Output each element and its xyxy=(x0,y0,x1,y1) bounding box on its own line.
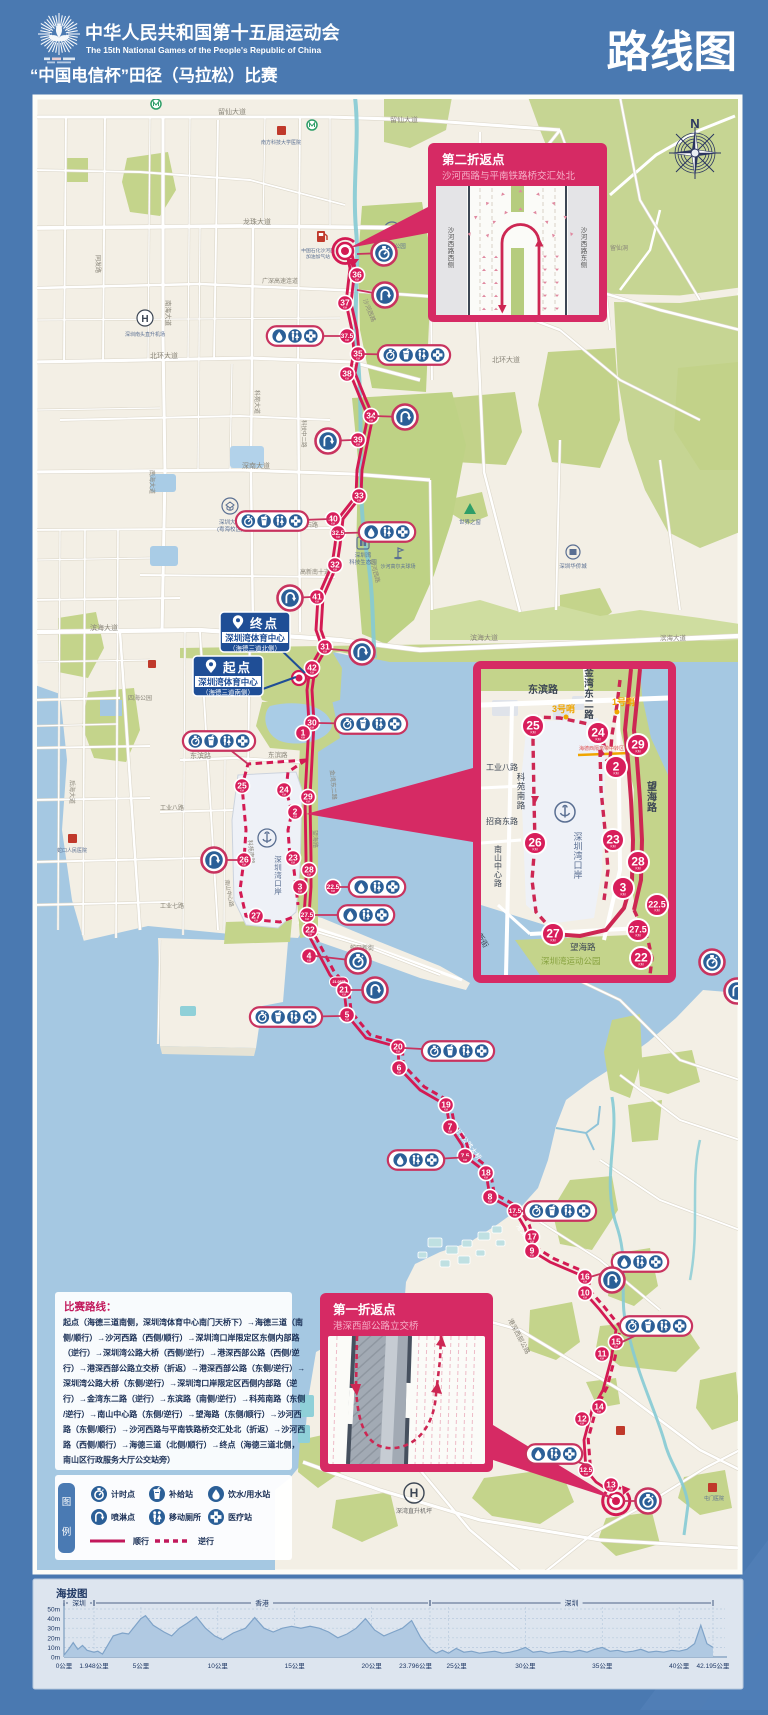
svg-text:路线图: 路线图 xyxy=(607,29,738,77)
svg-text:KM: KM xyxy=(635,750,640,754)
svg-text:留仙大道: 留仙大道 xyxy=(390,115,418,124)
svg-text:KM: KM xyxy=(310,671,314,675)
svg-text:北环大道: 北环大道 xyxy=(150,351,178,360)
svg-text:图: 图 xyxy=(62,1497,72,1508)
svg-text:科苑南路: 科苑南路 xyxy=(517,772,526,811)
svg-text:KM: KM xyxy=(345,1018,349,1022)
svg-text:留仙洞: 留仙洞 xyxy=(610,244,628,252)
svg-text:KM: KM xyxy=(345,338,349,342)
svg-text:KM: KM xyxy=(488,1200,492,1204)
svg-text:KM: KM xyxy=(301,736,305,740)
svg-text:高新南十道: 高新南十道 xyxy=(300,568,330,576)
svg-text:KM: KM xyxy=(530,731,535,735)
svg-text:40公里: 40公里 xyxy=(669,1662,690,1670)
svg-text:30公里: 30公里 xyxy=(515,1662,536,1670)
svg-text:KM: KM xyxy=(345,377,349,381)
svg-text:深湾直升机坪: 深湾直升机坪 xyxy=(396,1507,432,1515)
svg-text:1.948公里: 1.948公里 xyxy=(79,1662,109,1670)
svg-text:沙河高尔夫球场: 沙河高尔夫球场 xyxy=(380,563,415,570)
svg-text:南山区行政服务大厅公交站旁）: 南山区行政服务大厅公交站旁） xyxy=(63,1455,175,1465)
svg-text:42.195公里: 42.195公里 xyxy=(697,1662,730,1670)
svg-text:招商东路: 招商东路 xyxy=(486,816,518,826)
svg-text:The 15th National Games of the: The 15th National Games of the People's … xyxy=(86,45,321,55)
svg-text:路（西侧/顺行）→海德三道（北侧/顺行）→终点（海德三道北侧: 路（西侧/顺行）→海德三道（北侧/顺行）→终点（海德三道北侧， xyxy=(63,1439,299,1449)
svg-text:留仙大道: 留仙大道 xyxy=(218,107,246,116)
svg-text:KM: KM xyxy=(613,772,618,776)
svg-text:比赛路线：: 比赛路线： xyxy=(64,1300,117,1313)
svg-text:侧/顺行）→沙河西路（西侧/顺行）→深圳湾口岸限定区东侧内部: 侧/顺行）→沙河西路（西侧/顺行）→深圳湾口岸限定区东侧内部路 xyxy=(63,1332,300,1342)
svg-text:深圳: 深圳 xyxy=(72,1599,86,1608)
svg-text:工业八路: 工业八路 xyxy=(486,762,518,772)
svg-text:例: 例 xyxy=(62,1526,72,1538)
svg-text:H: H xyxy=(410,1486,419,1500)
svg-text:KM: KM xyxy=(583,1296,587,1300)
svg-text:KM: KM xyxy=(397,1071,401,1075)
svg-text:（海德三道南侧）: （海德三道南侧） xyxy=(202,688,254,697)
svg-text:深圳华侨城: 深圳华侨城 xyxy=(559,562,587,570)
svg-text:计时点: 计时点 xyxy=(111,1489,135,1499)
svg-text:KM: KM xyxy=(305,917,309,921)
svg-text:3号哨: 3号哨 xyxy=(552,703,575,714)
svg-text:KM: KM xyxy=(444,1108,448,1112)
svg-text:逆行: 逆行 xyxy=(198,1536,214,1546)
svg-text:KM: KM xyxy=(550,939,555,943)
svg-text:KM: KM xyxy=(298,890,302,894)
svg-text:补给站: 补给站 xyxy=(168,1489,193,1499)
svg-text:KM: KM xyxy=(532,848,537,852)
svg-text:行）→金湾东二路（逆行）→东滨路（南侧/逆行）→科苑南路（东: 行）→金湾东二路（逆行）→东滨路（南侧/逆行）→科苑南路（东侧 xyxy=(62,1394,305,1404)
svg-text:同发路: 同发路 xyxy=(94,255,102,273)
svg-text:（海德三道北侧）: （海德三道北侧） xyxy=(229,644,281,653)
svg-text:KM: KM xyxy=(609,1488,613,1492)
svg-text:沙河西路西侧: 沙河西路西侧 xyxy=(448,227,455,269)
svg-text:滨海大道: 滨海大道 xyxy=(470,633,498,642)
svg-text:龙珠大道: 龙珠大道 xyxy=(243,217,271,226)
svg-text:望海路: 望海路 xyxy=(647,780,658,814)
svg-text:KM: KM xyxy=(484,1176,488,1180)
svg-text:KM: KM xyxy=(530,1254,534,1258)
svg-text:科苑大道: 科苑大道 xyxy=(253,390,261,414)
svg-text:深圳湾口岸: 深圳湾口岸 xyxy=(573,832,582,880)
svg-text:四海公园: 四海公园 xyxy=(128,694,152,702)
svg-text:KM: KM xyxy=(282,793,286,797)
svg-text:第二折返点: 第二折返点 xyxy=(442,152,505,167)
svg-text:饮水/用水站: 饮水/用水站 xyxy=(227,1489,270,1499)
svg-text:中国石化沙河西: 中国石化沙河西 xyxy=(301,247,335,254)
svg-text:KM: KM xyxy=(323,650,327,654)
svg-text:KM: KM xyxy=(584,1472,588,1476)
svg-text:后海大道: 后海大道 xyxy=(68,780,76,804)
svg-text:KM: KM xyxy=(396,1050,400,1054)
svg-text:路（东侧/顺行）→沙河西路与平南铁路桥交汇处北（折返）→沙河: 路（东侧/顺行）→沙河西路与平南铁路桥交汇处北（折返）→沙河西 xyxy=(63,1424,305,1434)
svg-text:10公里: 10公里 xyxy=(208,1662,229,1670)
svg-text:北环大道: 北环大道 xyxy=(492,355,520,364)
svg-text:中华人民共和国第十五届运动会: 中华人民共和国第十五届运动会 xyxy=(85,22,340,43)
svg-text:23.796公里: 23.796公里 xyxy=(399,1662,432,1670)
svg-text:KM: KM xyxy=(310,726,314,730)
svg-text:/逆行）→南山中心路（东侧/逆行）→望海路（东侧/顺行）→沙: /逆行）→南山中心路（东侧/逆行）→望海路（东侧/顺行）→沙河西 xyxy=(63,1409,302,1419)
svg-text:KM: KM xyxy=(357,499,361,503)
svg-text:（逆行）→深圳湾公路大桥（西侧/逆行）→港深西部公路（西侧/: （逆行）→深圳湾公路大桥（西侧/逆行）→港深西部公路（西侧/逆 xyxy=(63,1348,299,1358)
svg-text:顺行: 顺行 xyxy=(133,1536,149,1546)
svg-text:KM: KM xyxy=(600,1357,604,1361)
svg-text:金湾东二路: 金湾东二路 xyxy=(583,667,594,721)
svg-text:KM: KM xyxy=(291,861,295,865)
svg-text:深圳湾运动公园: 深圳湾运动公园 xyxy=(541,956,601,966)
svg-text:KM: KM xyxy=(610,845,615,849)
svg-text:35公里: 35公里 xyxy=(592,1662,613,1670)
svg-text:沙河西路与平南铁路桥交汇处北: 沙河西路与平南铁路桥交汇处北 xyxy=(442,170,576,182)
svg-text:KM: KM xyxy=(595,738,600,742)
svg-text:东滨路: 东滨路 xyxy=(528,683,559,696)
svg-text:KM: KM xyxy=(315,600,319,604)
svg-text:KM: KM xyxy=(331,522,335,526)
svg-text:沙河西路东侧: 沙河西路东侧 xyxy=(581,227,588,269)
svg-text:南海大道: 南海大道 xyxy=(148,470,156,494)
svg-text:深圳南头直升机场: 深圳南头直升机场 xyxy=(125,331,165,338)
svg-text:世界之窗: 世界之窗 xyxy=(459,518,482,526)
svg-text:KM: KM xyxy=(597,1410,601,1414)
svg-text:15公里: 15公里 xyxy=(285,1662,306,1670)
svg-text:25公里: 25公里 xyxy=(447,1662,468,1670)
svg-text:KM: KM xyxy=(293,815,297,819)
svg-text:10m: 10m xyxy=(47,1645,60,1652)
svg-text:KM: KM xyxy=(463,1158,467,1162)
svg-text:香港: 香港 xyxy=(255,1599,269,1608)
svg-text:KM: KM xyxy=(242,863,246,867)
svg-text:KM: KM xyxy=(336,535,340,539)
svg-text:深圳湾体育中心: 深圳湾体育中心 xyxy=(198,677,258,687)
svg-text:KM: KM xyxy=(308,933,312,937)
svg-text:滨海大道: 滨海大道 xyxy=(660,633,687,642)
svg-text:1号哨: 1号哨 xyxy=(612,696,635,707)
svg-text:深圳湾公路大桥（东侧/逆行）→深圳湾口岸限定区西侧内部路（逆: 深圳湾公路大桥（东侧/逆行）→深圳湾口岸限定区西侧内部路（逆 xyxy=(63,1378,297,1388)
svg-text:东滨路: 东滨路 xyxy=(268,750,288,759)
svg-text:KM: KM xyxy=(333,568,337,572)
svg-text:KM: KM xyxy=(356,443,360,447)
svg-text:0m: 0m xyxy=(51,1655,60,1662)
svg-text:KM: KM xyxy=(635,867,640,871)
svg-text:KM: KM xyxy=(342,993,346,997)
svg-text:南海大道: 南海大道 xyxy=(164,300,173,327)
svg-text:望海路: 望海路 xyxy=(570,942,596,952)
svg-text:KM: KM xyxy=(614,1345,618,1349)
svg-text:工业七路: 工业七路 xyxy=(160,902,184,910)
svg-text:移动厕所: 移动厕所 xyxy=(169,1512,201,1522)
svg-text:KM: KM xyxy=(307,959,311,963)
svg-text:深圳湾: 深圳湾 xyxy=(355,551,372,559)
svg-text:东滨路: 东滨路 xyxy=(190,751,211,760)
svg-text:KM: KM xyxy=(448,1130,452,1134)
svg-text:KM: KM xyxy=(369,419,373,423)
svg-text:50m: 50m xyxy=(47,1607,60,1614)
svg-text:30m: 30m xyxy=(47,1626,60,1633)
svg-text:KM: KM xyxy=(240,789,244,793)
svg-text:屯门医院: 屯门医院 xyxy=(704,1495,724,1502)
svg-text:KM: KM xyxy=(307,873,311,877)
svg-text:行）→港深西部公路立交桥（折返）→港深西部公路（东侧/逆行）: 行）→港深西部公路立交桥（折返）→港深西部公路（东侧/逆行）→ xyxy=(62,1363,305,1373)
svg-text:20m: 20m xyxy=(47,1635,60,1642)
svg-text:KM: KM xyxy=(331,889,335,893)
svg-text:终点: 终点 xyxy=(250,616,279,631)
svg-text:KM: KM xyxy=(356,357,360,361)
svg-text:20公里: 20公里 xyxy=(361,1662,382,1670)
svg-text:N: N xyxy=(690,116,699,131)
svg-text:KM: KM xyxy=(635,934,640,938)
svg-text:起点: 起点 xyxy=(222,660,252,675)
svg-text:深圳湾口岸: 深圳湾口岸 xyxy=(274,855,282,896)
svg-text:深圳: 深圳 xyxy=(565,1599,579,1608)
svg-text:科技中二路: 科技中二路 xyxy=(300,420,308,448)
svg-text:南方科技大学医院: 南方科技大学医院 xyxy=(261,139,301,146)
svg-text:KM: KM xyxy=(654,909,659,913)
svg-text:KM: KM xyxy=(638,963,643,967)
svg-text:第一折返点: 第一折返点 xyxy=(333,1302,396,1317)
svg-text:港深西部公路立交桥: 港深西部公路立交桥 xyxy=(333,1320,419,1332)
svg-text:广深高速连道: 广深高速连道 xyxy=(262,277,298,285)
svg-text:KM: KM xyxy=(580,1422,584,1426)
svg-text:KM: KM xyxy=(620,893,625,897)
svg-text:5公里: 5公里 xyxy=(133,1662,150,1670)
svg-text:喷淋点: 喷淋点 xyxy=(111,1512,135,1522)
svg-text:“中国电信杯”田径（马拉松）比赛: “中国电信杯”田径（马拉松）比赛 xyxy=(30,65,278,85)
svg-text:KM: KM xyxy=(254,919,258,923)
svg-text:深南大道: 深南大道 xyxy=(242,461,270,470)
svg-text:KM: KM xyxy=(306,800,310,804)
svg-text:南山中心路: 南山中心路 xyxy=(494,844,502,888)
svg-text:KM: KM xyxy=(513,1213,517,1217)
svg-text:工业八路: 工业八路 xyxy=(160,804,184,812)
svg-text:加油加气站: 加油加气站 xyxy=(306,253,330,260)
svg-text:起点（海德三道南侧，深圳湾体育中心南门天桥下）→海德三道（南: 起点（海德三道南侧，深圳湾体育中心南门天桥下）→海德三道（南 xyxy=(62,1317,303,1327)
svg-text:40m: 40m xyxy=(47,1616,60,1623)
svg-text:深圳湾体育中心: 深圳湾体育中心 xyxy=(225,633,285,643)
svg-text:蛇口人民医院: 蛇口人民医院 xyxy=(57,847,87,854)
svg-text:滨海大道: 滨海大道 xyxy=(90,623,118,632)
svg-text:KM: KM xyxy=(343,306,347,310)
svg-text:KM: KM xyxy=(355,278,359,282)
svg-text:H: H xyxy=(141,314,148,325)
svg-text:0公里: 0公里 xyxy=(56,1662,73,1670)
svg-text:KM: KM xyxy=(583,1280,587,1284)
svg-text:医疗站: 医疗站 xyxy=(228,1512,252,1522)
